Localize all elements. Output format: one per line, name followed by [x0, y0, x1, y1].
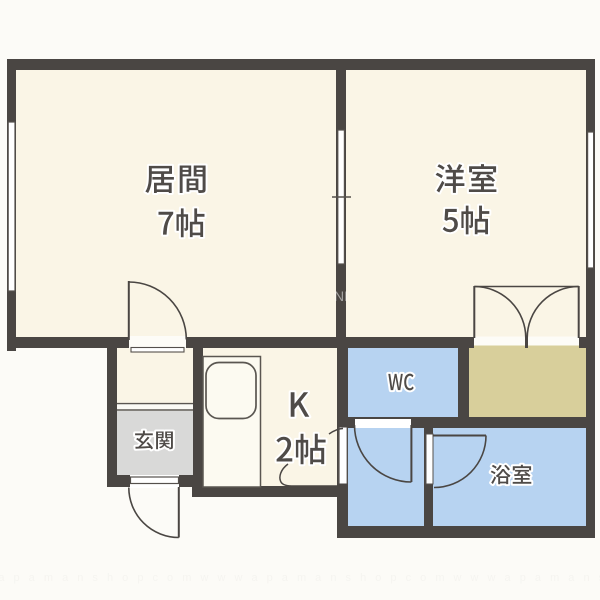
svg-text:w w w a p a m a n s h o p c o: w w w a p a m a n s h o p c o m w w w a … [0, 572, 600, 584]
svg-text:NI: NI [334, 288, 348, 304]
